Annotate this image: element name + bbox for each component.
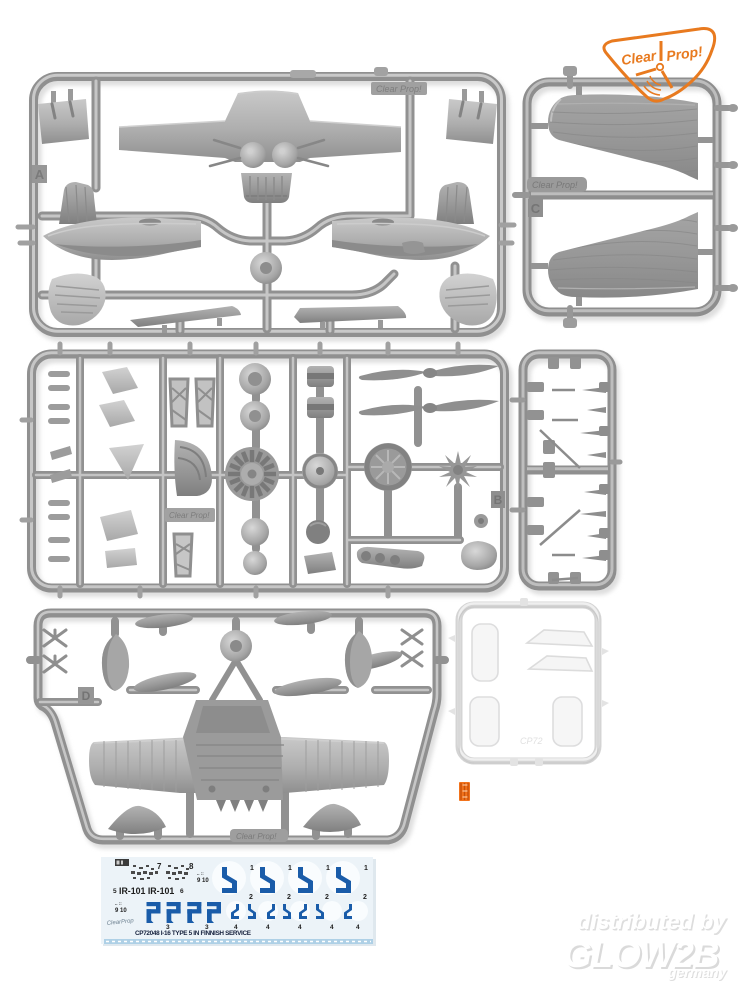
svg-text:9 10: 9 10 (197, 878, 209, 884)
svg-text:D: D (82, 689, 91, 703)
svg-text:.. ::: .. :: (115, 901, 122, 906)
svg-text:1: 1 (326, 865, 330, 872)
svg-text:IR-101 IR-101: IR-101 IR-101 (119, 886, 174, 896)
svg-text:Clear Prop!: Clear Prop! (376, 84, 422, 94)
svg-text:Clear Prop!: Clear Prop! (169, 511, 210, 520)
svg-text:2: 2 (363, 894, 367, 901)
svg-text:distributed by: distributed by (577, 909, 727, 934)
svg-text:1: 1 (288, 865, 292, 872)
svg-text:4: 4 (356, 924, 360, 931)
svg-text:CP72: CP72 (520, 736, 543, 746)
svg-text:Clear Prop!: Clear Prop! (532, 180, 578, 190)
svg-text:5: 5 (113, 888, 117, 895)
svg-text:2: 2 (249, 894, 253, 901)
svg-text:1: 1 (364, 865, 368, 872)
svg-text:4: 4 (266, 924, 270, 931)
svg-text:B: B (494, 493, 503, 507)
svg-text:4: 4 (330, 924, 334, 931)
svg-text:6: 6 (180, 888, 184, 895)
svg-text:germany: germany (667, 964, 728, 980)
svg-text:2: 2 (325, 894, 329, 901)
svg-text:Clear Prop!: Clear Prop! (236, 832, 277, 841)
svg-text:4: 4 (298, 924, 302, 931)
svg-text:7: 7 (157, 862, 162, 871)
svg-text:CP72048 I-16 TYPE 5 IN FINNI: CP72048 I-16 TYPE 5 IN FINNISH SERVICE (135, 930, 252, 937)
svg-text:8: 8 (189, 862, 194, 871)
svg-text:C: C (531, 201, 541, 216)
svg-text:1: 1 (250, 865, 254, 872)
svg-text:A: A (35, 167, 45, 182)
svg-text:9 10: 9 10 (115, 908, 127, 914)
svg-text:.. ::: .. :: (197, 871, 204, 876)
svg-text:2: 2 (287, 894, 291, 901)
